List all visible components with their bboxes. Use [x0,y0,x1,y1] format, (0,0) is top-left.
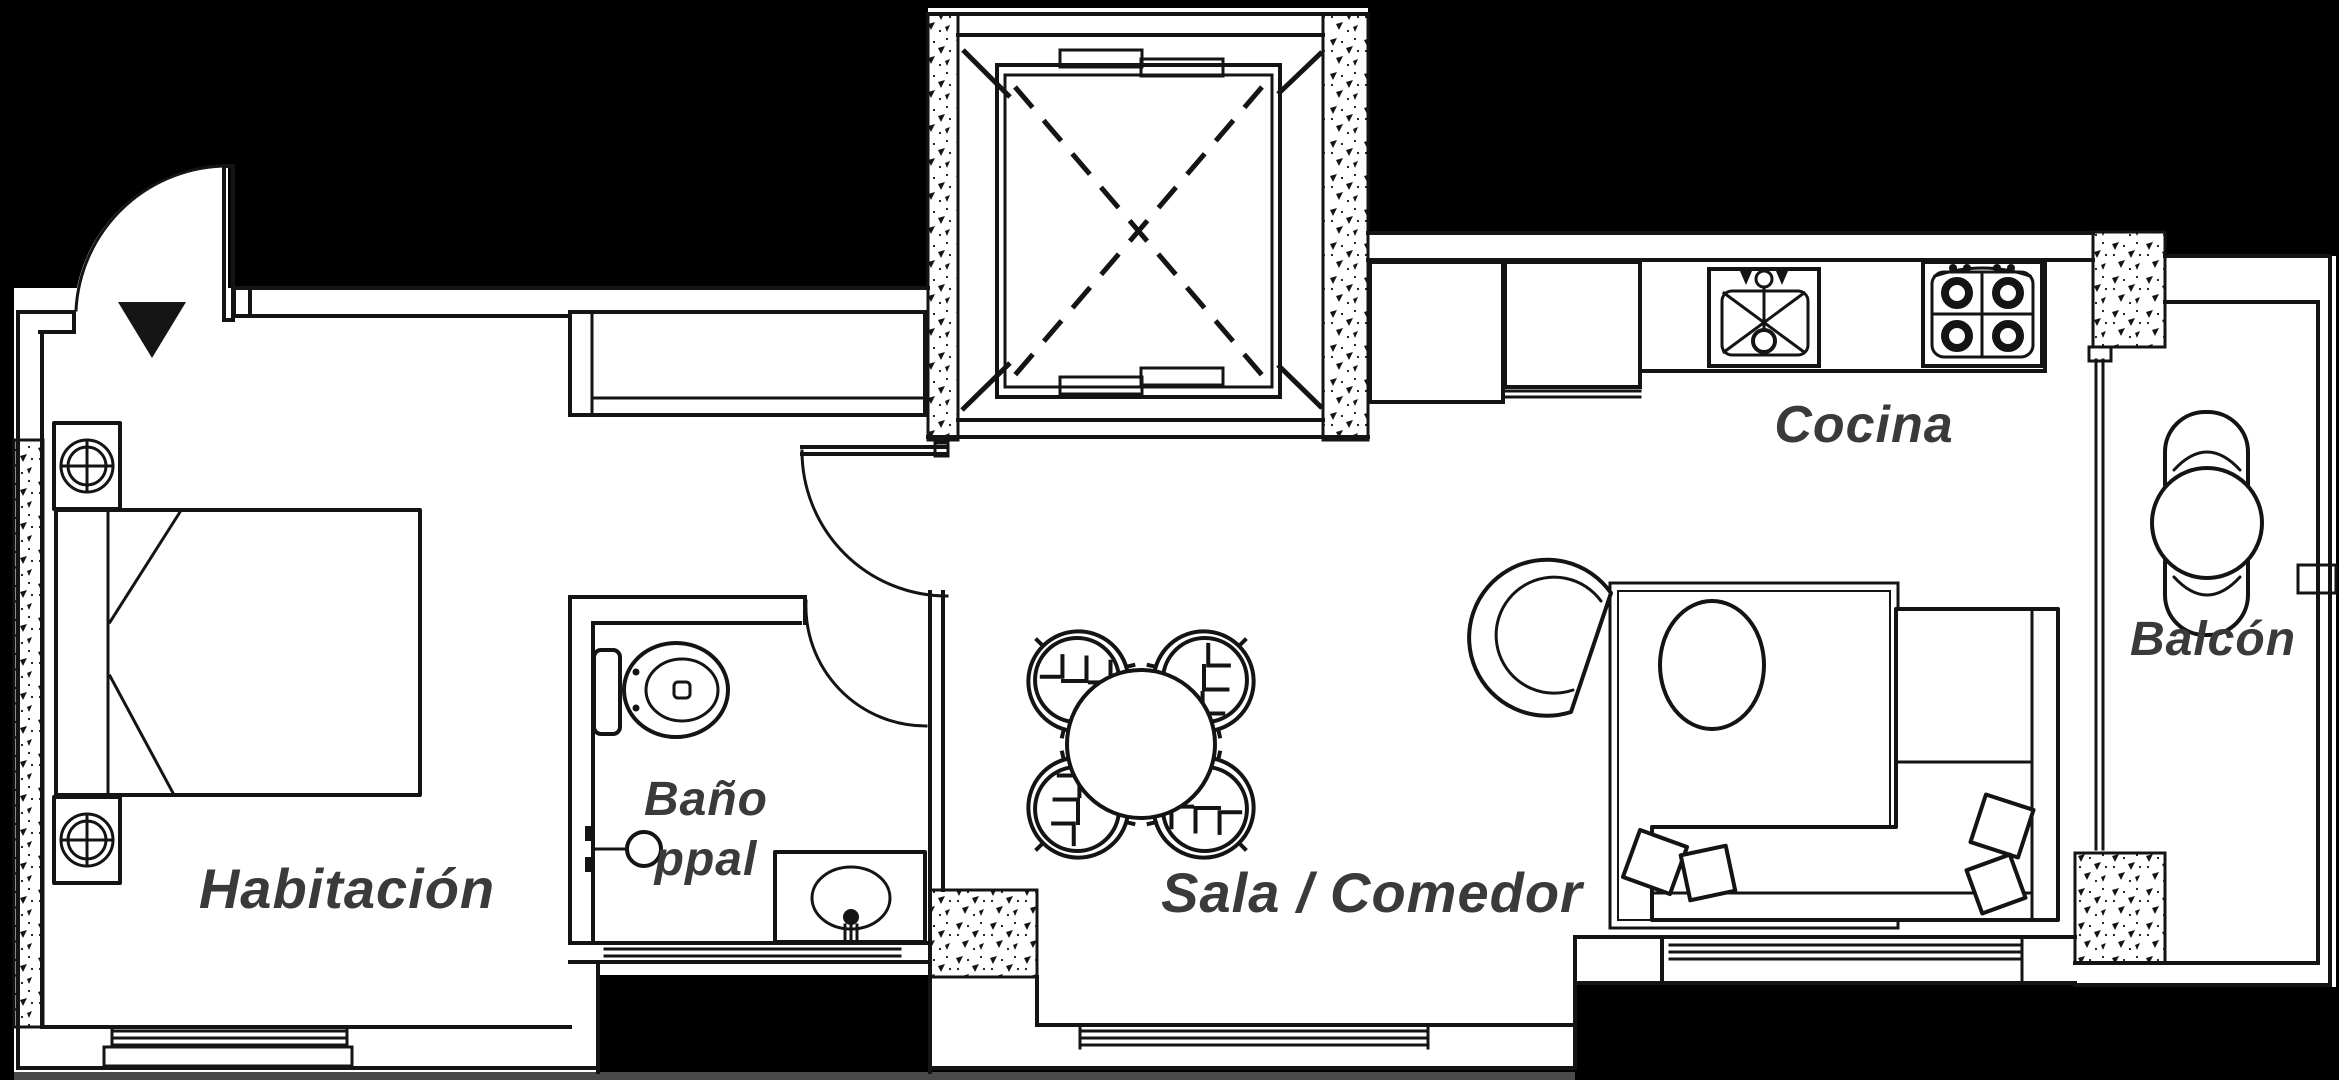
nightstand-lamp-bottom [54,797,120,883]
pouf [1660,601,1764,729]
toilet [594,643,728,737]
label-balcon: Balcón [2130,613,2296,666]
balcony-table [2152,468,2262,578]
pillow [1681,846,1736,901]
label-habitacion: Habitación [199,857,495,920]
label-bano-line1: Baño [644,773,768,826]
bottom-sill-strip [14,1072,1575,1080]
pier-kitchen-balcony [2093,232,2165,347]
balcony-set [2152,412,2262,635]
nightstand-lamp-top [54,423,120,509]
label-cocina: Cocina [1774,396,1953,454]
pier-balcony-bottom [2075,853,2165,963]
floor-plan-page: Habitación Baño ppal Sala / Comedor Coci… [0,0,2339,1080]
label-bano-line2: ppal [653,833,758,886]
vanity-sink [775,852,925,943]
floor-plan: Habitación Baño ppal Sala / Comedor Coci… [0,0,2339,1080]
pier-elevator-right [1323,14,1368,440]
sala-window-left [1080,1027,1428,1048]
label-sala-comedor: Sala / Comedor [1161,861,1585,924]
bed [56,510,420,795]
exterior-notch [598,975,930,1080]
pier-elevator-left [928,14,958,440]
pier-bath-sala [930,890,1037,977]
dining-table [1067,670,1215,818]
bedroom-window [112,1027,347,1047]
